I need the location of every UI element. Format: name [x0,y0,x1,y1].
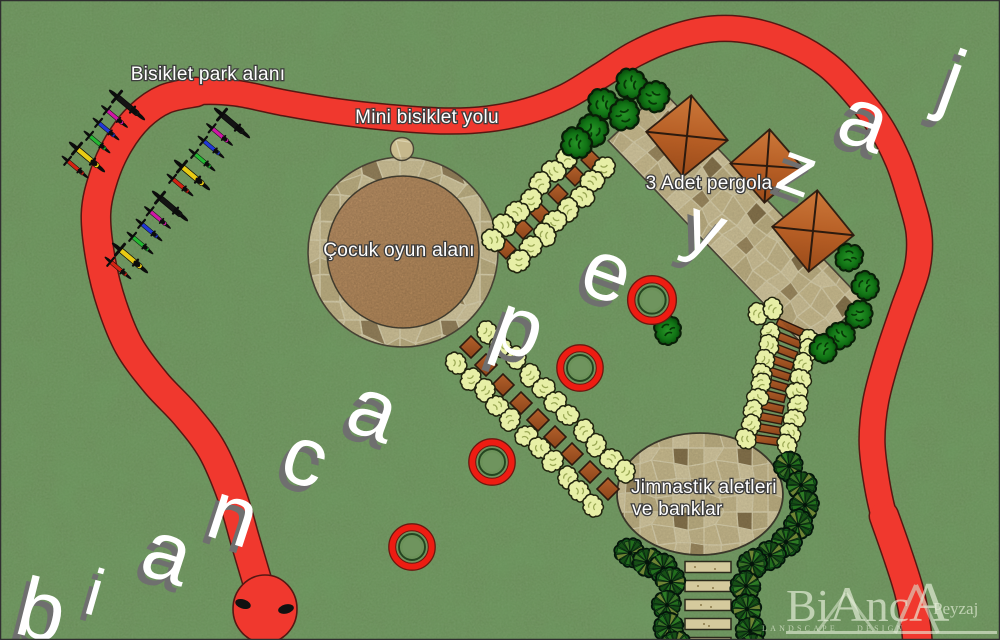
svg-text:ve banklar: ve banklar [632,499,723,520]
svg-text:Mini bisiklet yolu: Mini bisiklet yolu [355,107,499,128]
svg-text:3 Adet pergola: 3 Adet pergola [646,173,773,194]
svg-text:Peyzaj: Peyzaj [933,599,978,618]
svg-text:Jimnastik aletleri: Jimnastik aletleri [631,477,777,498]
svg-text:Bisiklet park alanı: Bisiklet park alanı [131,64,286,85]
svg-text:Çocuk oyun alanı: Çocuk oyun alanı [323,240,475,261]
